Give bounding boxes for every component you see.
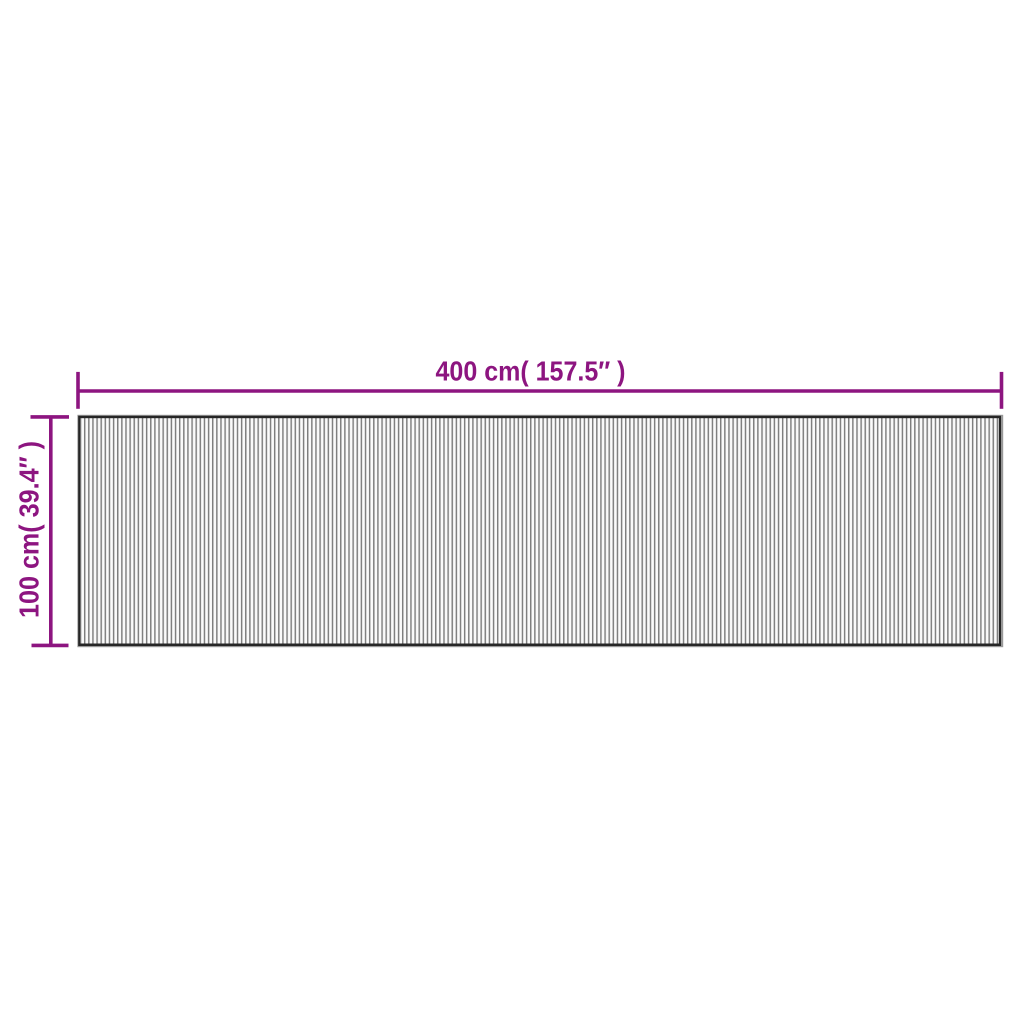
svg-text:100 cm( 39.4″ ): 100 cm( 39.4″ ) — [14, 441, 45, 618]
svg-text:400 cm( 157.5″ ): 400 cm( 157.5″ ) — [436, 356, 626, 387]
